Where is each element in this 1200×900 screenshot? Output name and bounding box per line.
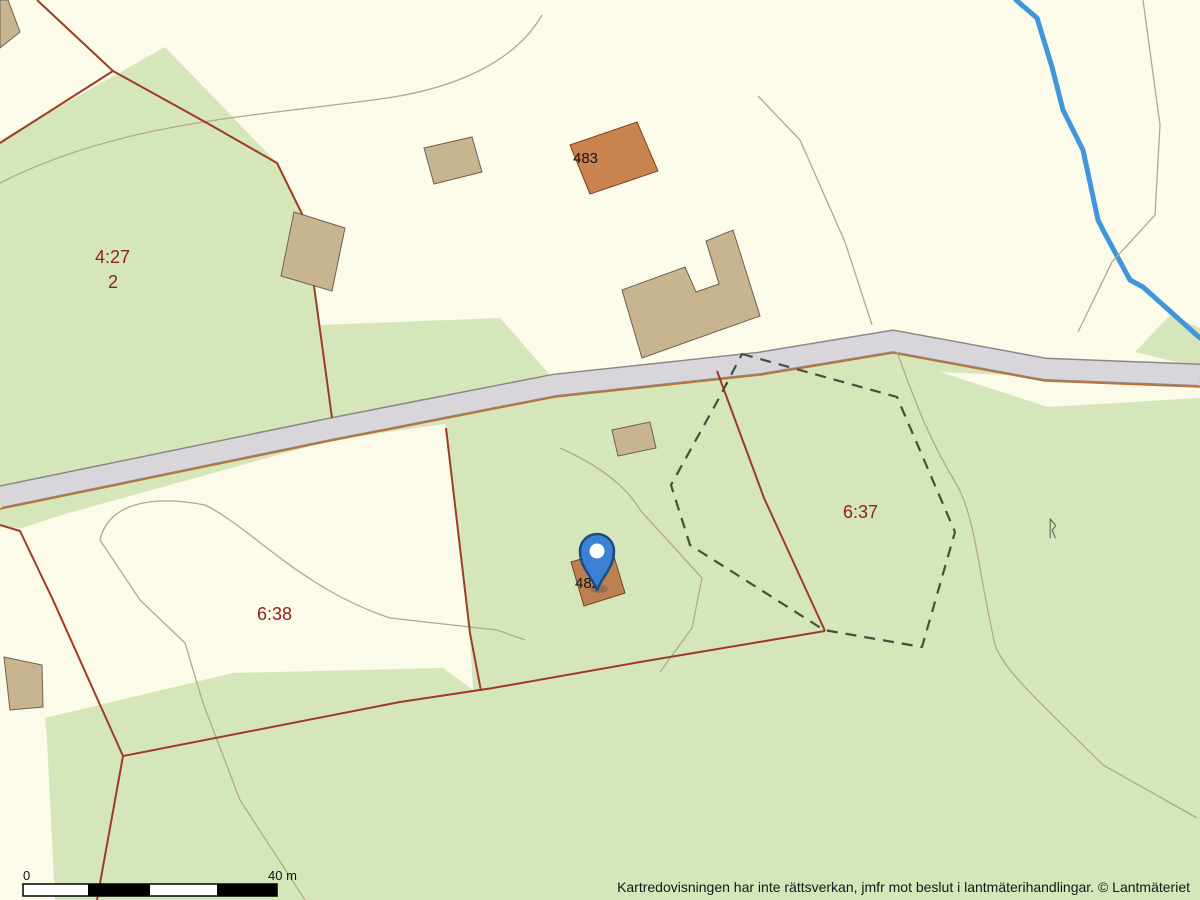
attribution-text: Kartredovisningen har inte rättsverkan, … <box>617 879 1190 895</box>
building-west-shed <box>4 657 43 710</box>
map-viewport[interactable]: 483 482 4:27 2 6:38 6:37 ᚱ 0 40 m Kartre… <box>0 0 1200 900</box>
scalebar-segment-black-2 <box>217 884 277 896</box>
building-label-483: 483 <box>573 150 598 167</box>
pin-hole <box>590 544 605 559</box>
map-canvas[interactable]: 483 482 4:27 2 6:38 6:37 ᚱ 0 40 m Kartre… <box>0 0 1200 900</box>
parcel-label-427: 4:27 <box>95 247 130 267</box>
scalebar-end-label: 40 m <box>268 868 297 883</box>
parcel-label-638: 6:38 <box>257 604 292 624</box>
scalebar-segment-black-1 <box>88 884 150 896</box>
parcel-label-637: 6:37 <box>843 502 878 522</box>
scalebar-start-label: 0 <box>23 868 30 883</box>
parcel-label-427-index: 2 <box>108 272 118 292</box>
ancient-monument-icon: ᚱ <box>1046 516 1059 541</box>
